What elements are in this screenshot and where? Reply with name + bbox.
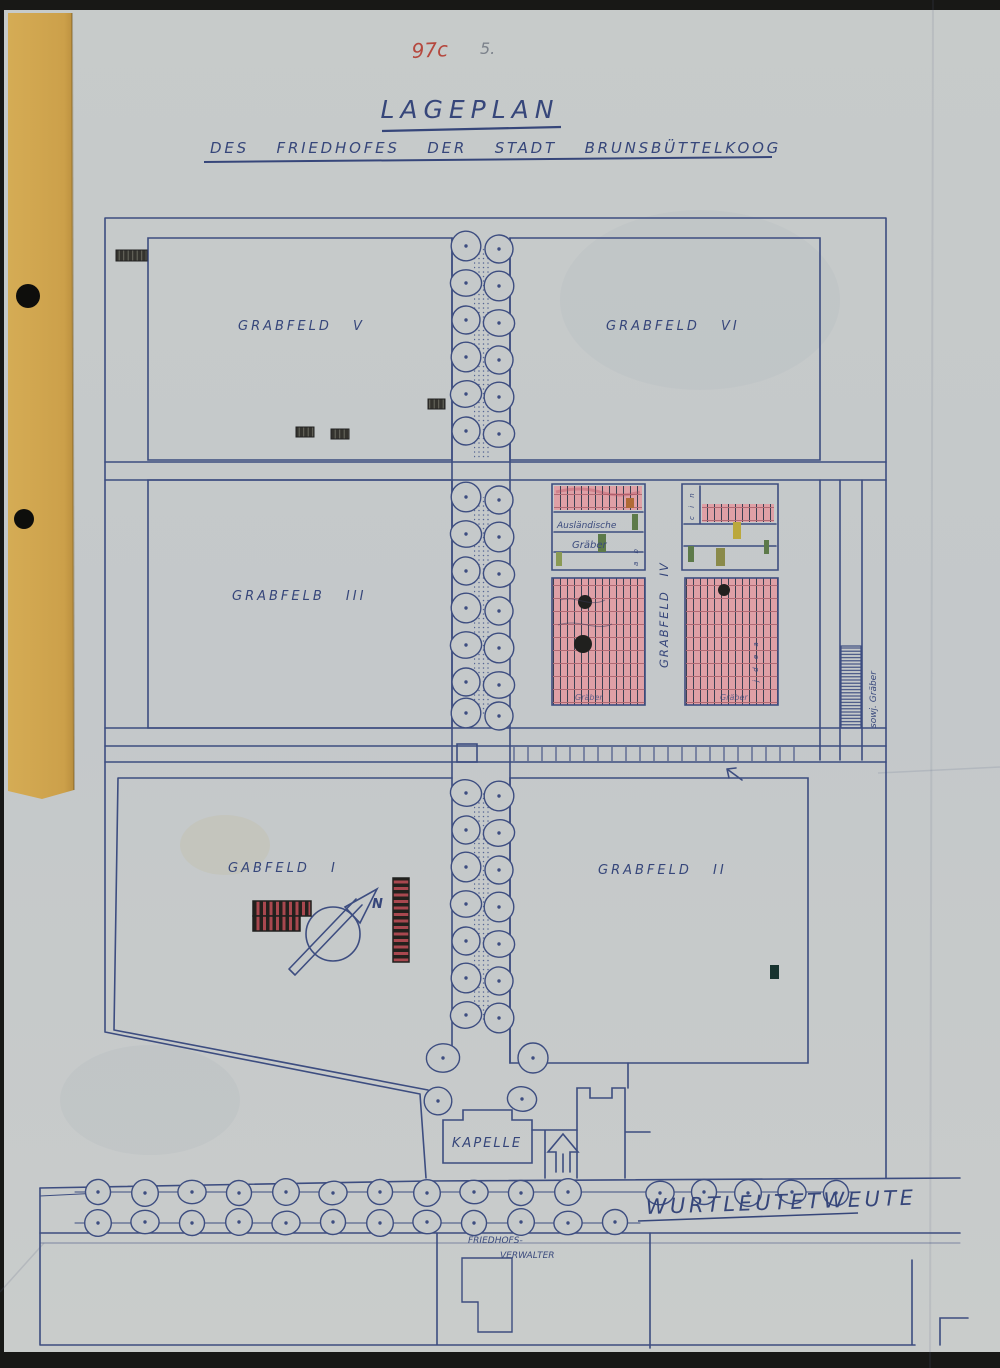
grave-mark (331, 429, 349, 439)
plot-letters-left: a b (632, 546, 640, 566)
grave-mark (428, 399, 445, 409)
archival-red-mark: 97c (411, 37, 449, 63)
north-label: N (372, 897, 383, 912)
site-plan-map: 97c 5. LAGEPLAN DES FRIEDHOFES DER STADT… (0, 0, 1000, 1368)
field-label-ii: GRABFELD II (598, 863, 727, 878)
scanned-site-plan: 97c 5. LAGEPLAN DES FRIEDHOFES DER STADT… (0, 0, 1000, 1368)
caretaker-label-2: VERWALTER (500, 1251, 555, 1261)
foreign-graves-label-1: Ausländische (556, 521, 617, 531)
foreign-graves-label-2: Gräber (572, 540, 607, 551)
grave-mark (770, 965, 779, 979)
soviet-graves-label: sowj. Gräber (869, 670, 879, 728)
grave-mark (116, 250, 147, 261)
plot-note-right: Gräber (720, 693, 748, 702)
grave-mark (296, 427, 314, 437)
field-label-i: GABFELD I (228, 861, 338, 876)
caretaker-label-1: FRIEDHOFS- (468, 1236, 523, 1246)
plot-note-left: Gräber (575, 693, 603, 702)
archival-pencil-mark: 5. (480, 39, 495, 58)
field-label-iii: GRABFELB III (232, 589, 366, 604)
page-subtitle: DES FRIEDHOFES DER STADT BRUNSBÜTTELKOOG (210, 138, 781, 157)
punch-hole (16, 284, 40, 308)
field-label-vi: GRABFELD VI (606, 319, 740, 334)
field-label-v: GRABFELD V (238, 319, 365, 334)
soviet-graves-strip (841, 646, 861, 728)
plot-letters-right: c i n (688, 490, 696, 520)
binding-tape (8, 13, 74, 799)
plot-letters-lower: j d e a (752, 639, 760, 683)
field-label-iv: GRABFELD IV (657, 561, 671, 668)
punch-hole (14, 509, 34, 529)
chapel-label: KAPELLE (452, 1136, 522, 1151)
page-title: LAGEPLAN (380, 95, 559, 124)
